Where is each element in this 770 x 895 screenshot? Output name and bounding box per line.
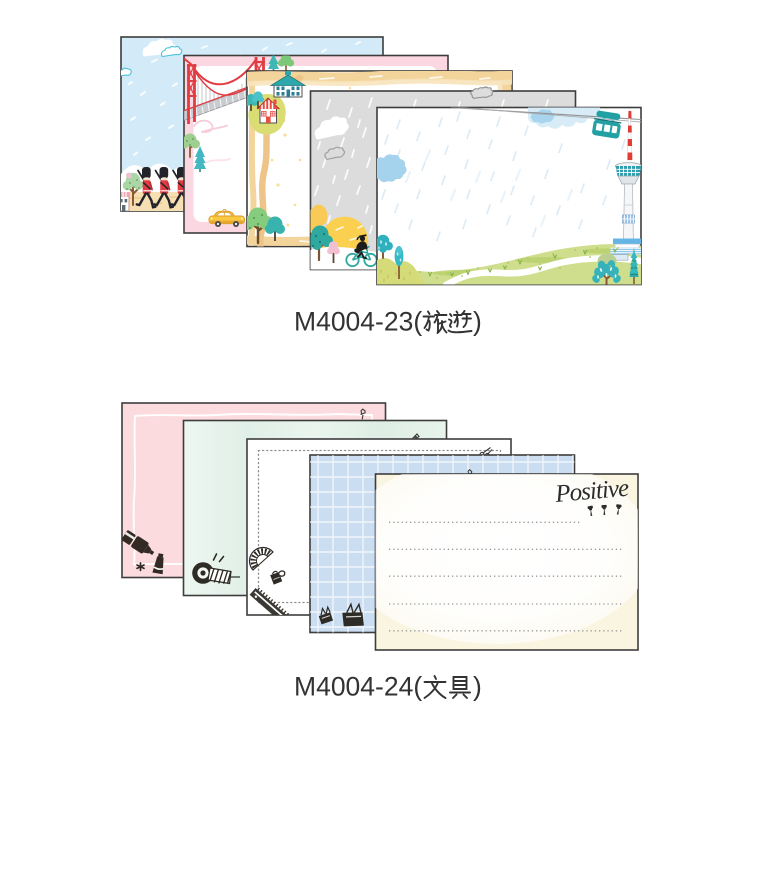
svg-text:): ) — [473, 672, 482, 702]
svg-text:): ) — [473, 307, 482, 337]
svg-text:M4004-24(: M4004-24( — [294, 672, 422, 702]
svg-text:M4004-23(: M4004-23( — [294, 307, 422, 337]
